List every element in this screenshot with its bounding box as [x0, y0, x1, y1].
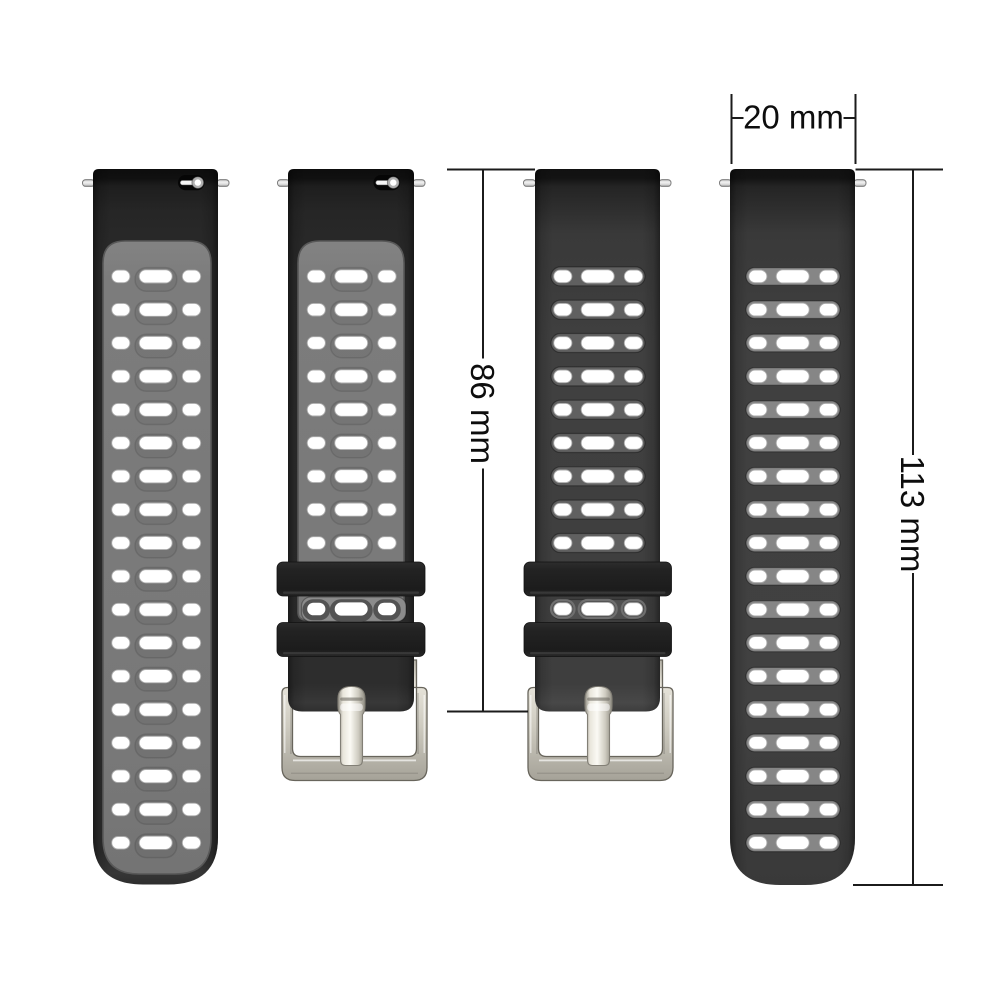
svg-text:20 mm: 20 mm — [743, 99, 844, 136]
svg-text:86 mm: 86 mm — [464, 363, 501, 464]
svg-text:113 mm: 113 mm — [894, 456, 931, 573]
